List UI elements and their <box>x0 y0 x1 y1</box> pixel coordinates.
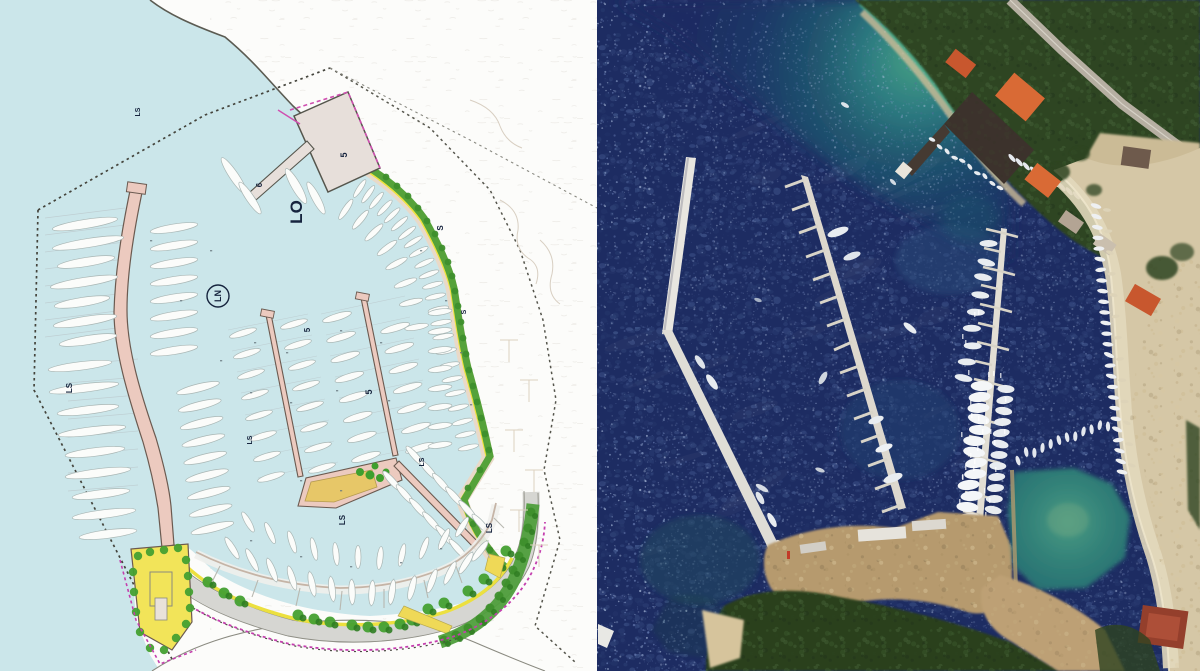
svg-text:S: S <box>461 309 468 314</box>
svg-text:S: S <box>436 225 445 231</box>
svg-text:LS: LS <box>65 382 74 393</box>
svg-text:LS: LS <box>135 107 142 116</box>
svg-text:LS: LS <box>338 514 347 525</box>
svg-text:LO: LO <box>287 200 306 224</box>
svg-text:LS: LS <box>485 522 494 533</box>
svg-text:LN: LN <box>213 290 223 302</box>
svg-text:5: 5 <box>364 389 374 394</box>
svg-text:5: 5 <box>339 152 349 157</box>
svg-text:LS: LS <box>247 435 254 444</box>
svg-text:LS: LS <box>419 457 426 466</box>
svg-text:6: 6 <box>255 182 264 187</box>
svg-text:5: 5 <box>303 327 312 332</box>
